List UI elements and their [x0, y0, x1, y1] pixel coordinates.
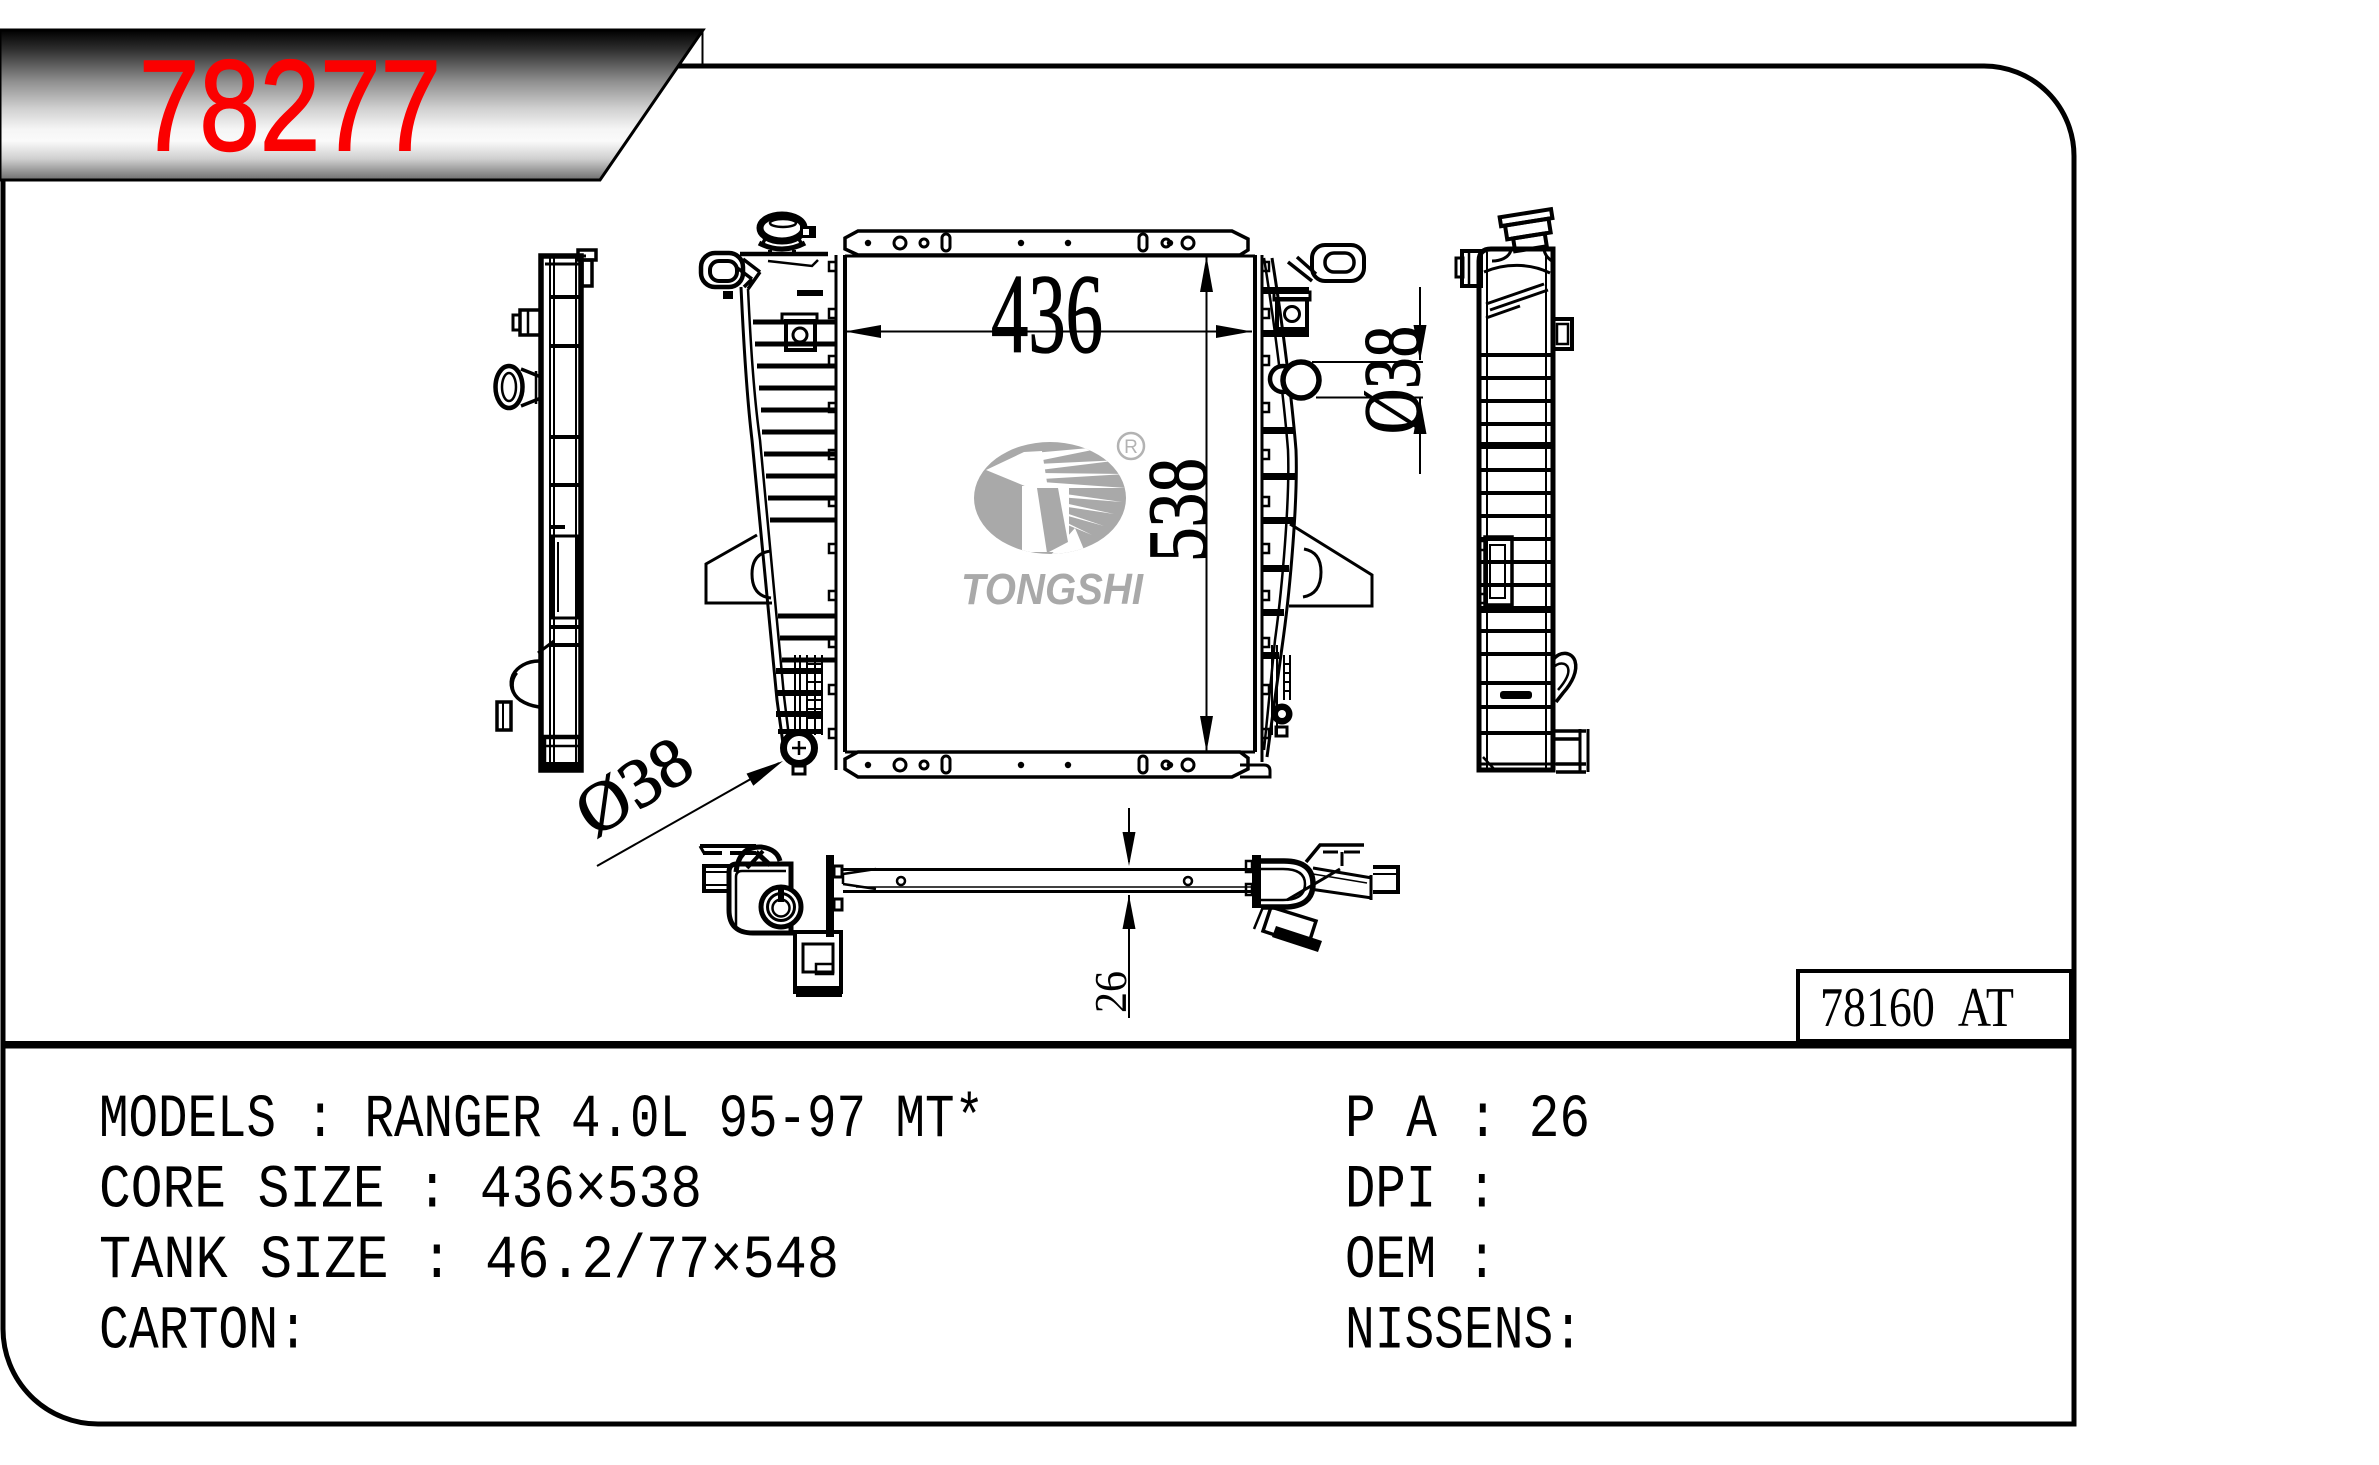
svg-text:R: R	[1124, 437, 1138, 458]
svg-text:78277: 78277	[139, 34, 441, 178]
svg-text:NISSENS:: NISSENS:	[1345, 1296, 1583, 1367]
svg-text:TONGSHI: TONGSHI	[961, 565, 1144, 614]
svg-text:TANK SIZE : 46.2/77×548: TANK SIZE : 46.2/77×548	[99, 1225, 839, 1296]
svg-text:Ø38: Ø38	[1349, 326, 1437, 434]
svg-text:26: 26	[1086, 971, 1136, 1013]
svg-text:538: 538	[1131, 458, 1225, 562]
svg-text:78160 AT: 78160 AT	[1820, 977, 2014, 1039]
svg-text:436: 436	[991, 252, 1103, 377]
svg-text:MODELS : RANGER 4.0L 95-97 MT*: MODELS : RANGER 4.0L 95-97 MT*	[99, 1084, 984, 1155]
svg-text:CARTON:: CARTON:	[99, 1296, 308, 1367]
svg-text:DPI :: DPI :	[1345, 1155, 1497, 1226]
svg-text:P A : 26: P A : 26	[1345, 1084, 1590, 1155]
svg-text:OEM :: OEM :	[1345, 1225, 1497, 1296]
svg-text:CORE SIZE : 436×538: CORE SIZE : 436×538	[99, 1155, 702, 1226]
